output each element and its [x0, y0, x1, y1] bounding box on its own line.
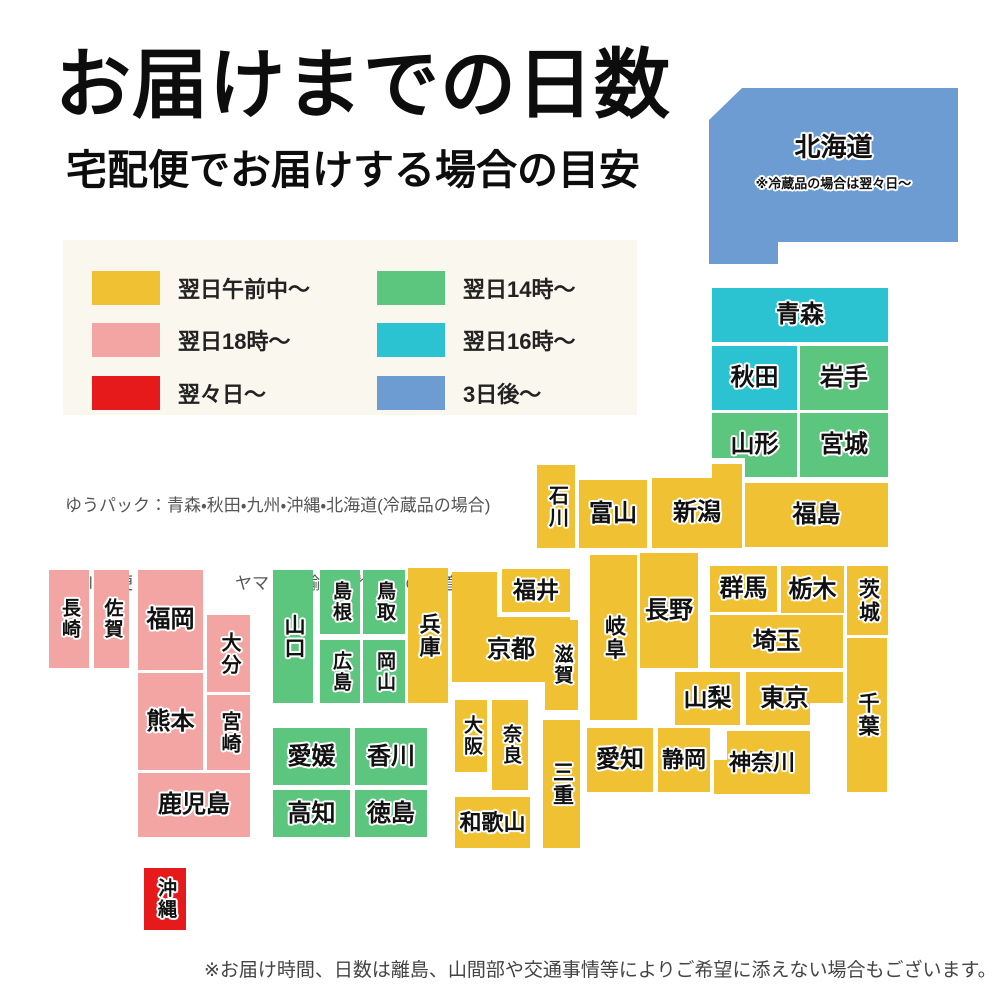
map-block-kochi: 高知 — [273, 790, 350, 837]
map-block-okinawa: 沖縄 — [144, 868, 186, 930]
map-block-yamaguchi: 山口 — [273, 570, 313, 703]
map-block-niigata: 新潟 — [652, 464, 742, 548]
map-block-kagawa: 香川 — [355, 728, 427, 785]
delivery-days-infographic: お届けまでの日数 宅配便でお届けする場合の目安 翌日午前中〜 翌日14時〜 翌日… — [0, 0, 1000, 1000]
map-block-tottori: 鳥取 — [363, 570, 405, 634]
footer-note-line1: ※お届け時間、日数は離島、山間部や交通事情等によりご希望に添えない場合もございま… — [204, 956, 997, 985]
map-block-hiroshima: 広島 — [320, 640, 360, 703]
map-block-tochigi: 栃木 — [781, 566, 844, 613]
map-block-saga: 佐賀 — [94, 570, 129, 668]
map-block-yamanashi: 山梨 — [675, 672, 740, 725]
map-block-shiga: 滋賀 — [545, 620, 578, 710]
map-block-kagoshima: 鹿児島 — [138, 773, 250, 837]
map-block-tokyo: 東京 — [746, 672, 843, 725]
map-block-ibaraki: 茨城 — [847, 566, 888, 635]
map-block-shimane: 島根 — [320, 570, 360, 634]
map-block-oita: 大分 — [207, 615, 250, 692]
map-block-gunma: 群馬 — [710, 566, 777, 612]
map-block-fukui: 福井 — [502, 569, 570, 612]
map-block-aomori: 青森 — [712, 288, 888, 342]
map-block-hyogo: 兵庫 — [408, 568, 448, 703]
map-block-miyazaki: 宮崎 — [207, 695, 250, 770]
map-block-mie: 三重 — [543, 720, 580, 848]
footer-notes: ※お届け時間、日数は離島、山間部や交通事情等によりご希望に添えない場合もございま… — [204, 898, 997, 1000]
map-block-miyagi: 宮城 — [800, 413, 888, 477]
map-block-okayama: 岡山 — [363, 640, 405, 703]
map-block-iwate: 岩手 — [800, 346, 888, 410]
map-block-kanagawa: 神奈川 — [714, 731, 810, 794]
map-block-osaka: 大阪 — [455, 700, 487, 772]
map-block-nagano: 長野 — [640, 553, 698, 668]
map-block-fukushima: 福島 — [745, 483, 888, 547]
map-block-ishikawa: 石川 — [537, 465, 575, 548]
map-block-tokushima: 徳島 — [355, 790, 427, 837]
map-block-ehime: 愛媛 — [273, 728, 350, 785]
map-block-toyama: 富山 — [579, 480, 647, 548]
map-block-gifu: 岐阜 — [590, 555, 637, 720]
map-block-akita: 秋田 — [712, 346, 797, 410]
map-block-aichi: 愛知 — [587, 728, 653, 792]
map-block-nagasaki: 長崎 — [49, 570, 89, 668]
map-block-chiba: 千葉 — [847, 638, 887, 792]
map-block-wakayama: 和歌山 — [455, 797, 530, 848]
map-block-shizuoka: 静岡 — [658, 728, 710, 792]
map-block-hokkaido: 北海道 ※冷蔵品の場合は翌々日〜 — [709, 88, 958, 265]
hokkaido-note: ※冷蔵品の場合は翌々日〜 — [756, 173, 912, 192]
map-block-fukuoka: 福岡 — [138, 570, 203, 670]
map-block-kumamoto: 熊本 — [138, 673, 203, 770]
hokkaido-label: 北海道 — [794, 127, 872, 164]
japan-tile-map: 北海道 ※冷蔵品の場合は翌々日〜 青森秋田岩手山形宮城石川富山新潟福島福井京都滋… — [0, 0, 1000, 1000]
map-block-saitama: 埼玉 — [710, 615, 843, 668]
map-block-nara: 奈良 — [492, 700, 528, 790]
